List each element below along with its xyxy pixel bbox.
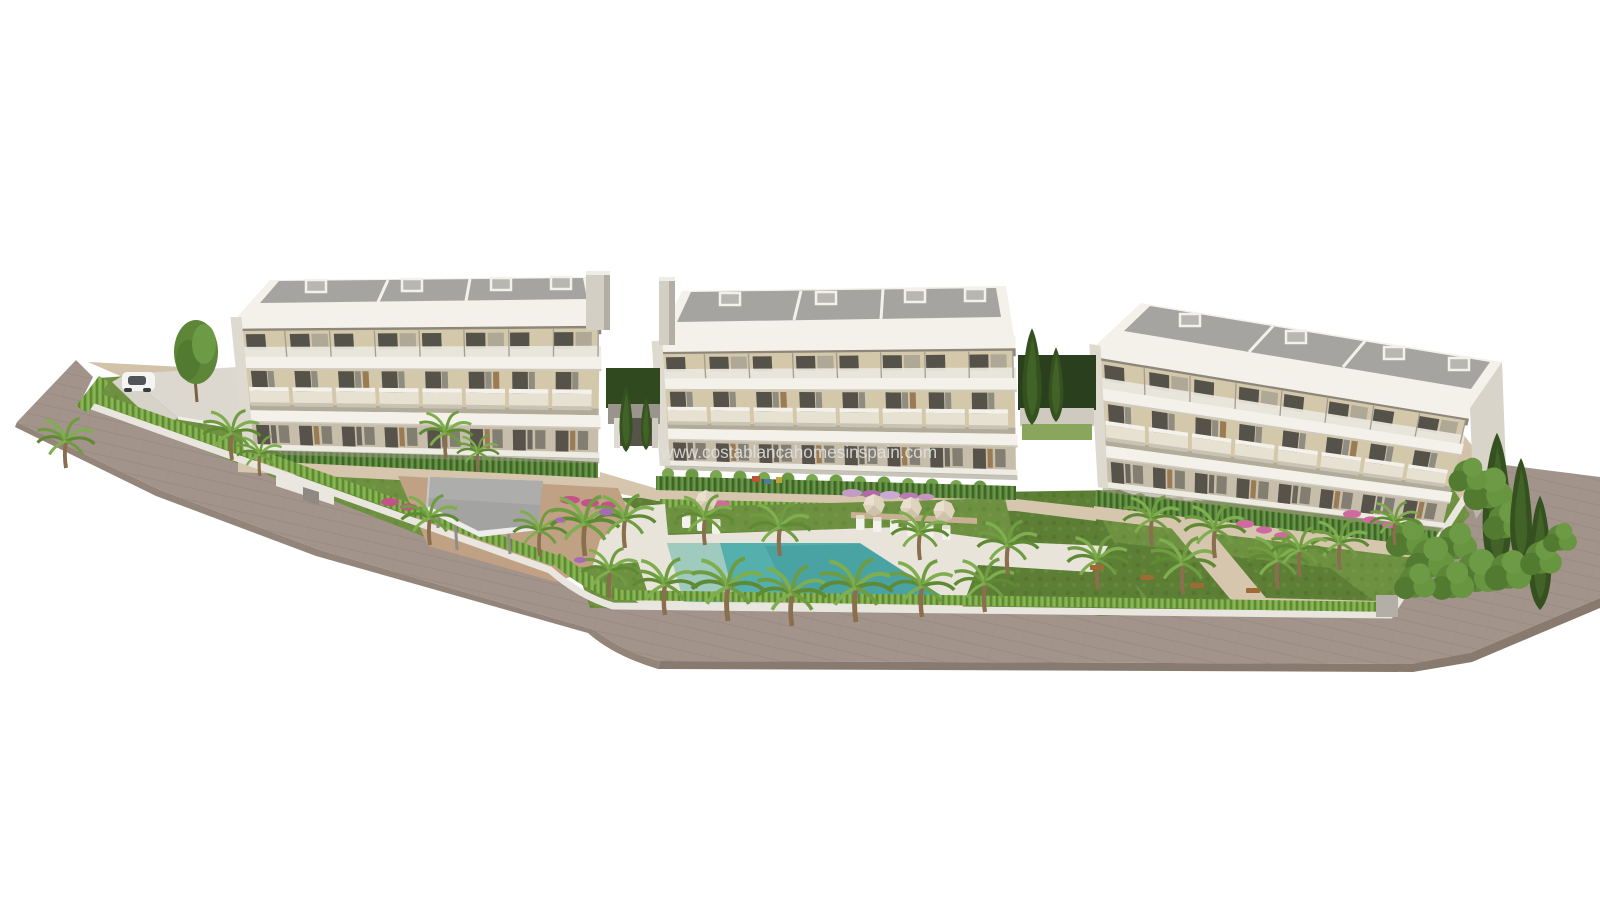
svg-text:www.costablancahomesinspain.co: www.costablancahomesinspain.com: [660, 442, 937, 462]
